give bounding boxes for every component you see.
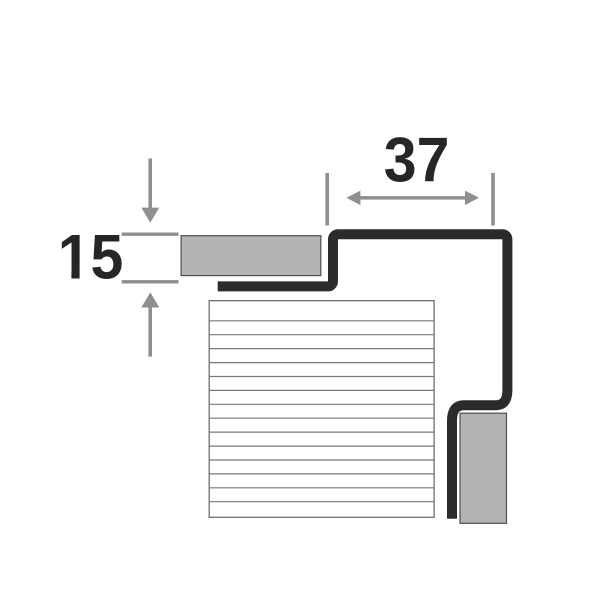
svg-text:15: 15 bbox=[58, 222, 124, 292]
svg-text:37: 37 bbox=[384, 125, 450, 195]
